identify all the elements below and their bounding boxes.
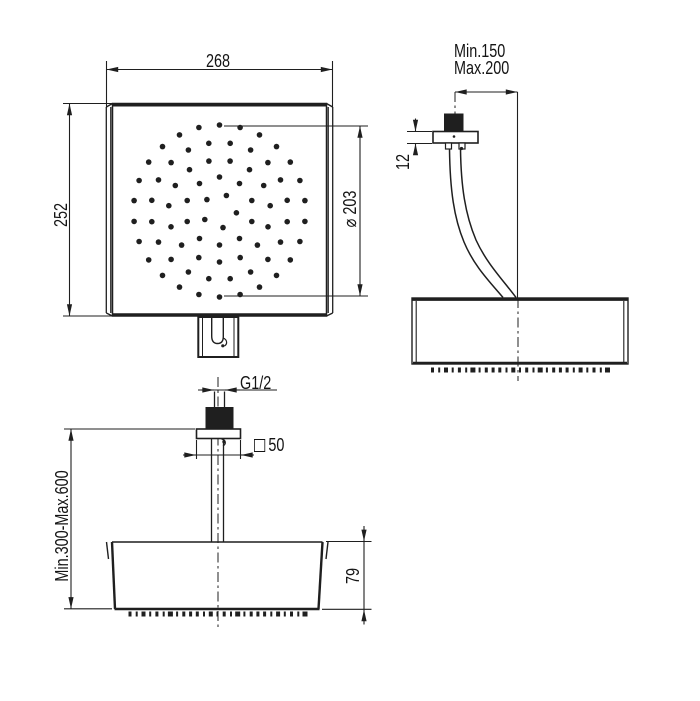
nozzle-ticks-ceiling-view <box>129 612 308 617</box>
mount-square-label: 50 <box>254 436 284 454</box>
mount-square-value: 50 <box>268 435 284 455</box>
wall-union <box>433 114 478 151</box>
technical-drawing-canvas: 268 252 ⌀ 203 Min.150 Max.200 12 G1/2 50… <box>0 0 700 701</box>
side-view <box>407 92 628 381</box>
nozzle-ticks-side-view <box>431 368 610 373</box>
arm-reach-max-line: Max.200 <box>454 60 509 78</box>
drop-range-label: Min.300-Max.600 <box>53 470 71 581</box>
shower-arm <box>450 149 517 298</box>
front-arm-connector <box>198 317 238 357</box>
front-view <box>63 61 368 357</box>
side-head-profile <box>412 298 628 381</box>
arm-reach-label: Min.150 Max.200 <box>454 43 509 78</box>
height-dimension-label: 252 <box>52 203 70 227</box>
ceiling-head-profile <box>107 542 329 617</box>
dim-drop-range <box>64 429 195 609</box>
head-thickness-label: 79 <box>344 567 362 583</box>
arm-reach-min-line: Min.150 <box>454 43 509 61</box>
drawing-linework <box>0 0 700 701</box>
ceiling-view <box>64 377 372 628</box>
spray-diameter-label: ⌀ 203 <box>341 191 359 228</box>
width-dimension-label: 268 <box>206 52 230 70</box>
front-face-plate <box>113 104 327 317</box>
flange-thickness-label: 12 <box>394 154 412 170</box>
square-symbol <box>254 439 265 452</box>
dim-12 <box>407 119 432 155</box>
thread-size-label: G1/2 <box>240 374 271 392</box>
